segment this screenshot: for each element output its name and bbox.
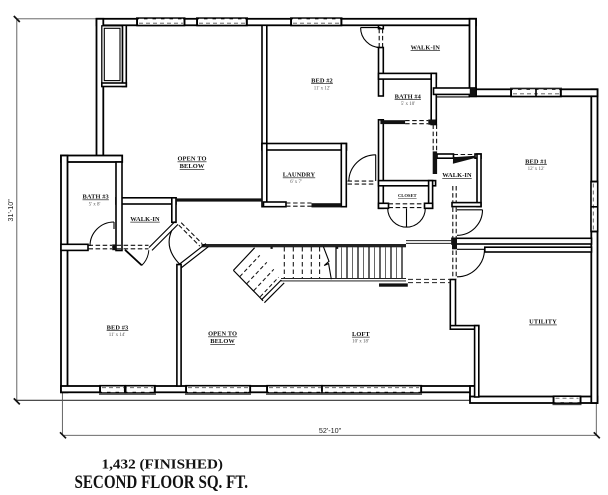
svg-text:10' x 18': 10' x 18' (352, 339, 369, 344)
svg-text:31'-10": 31'-10" (6, 199, 15, 222)
svg-text:BELOW: BELOW (210, 338, 235, 345)
svg-text:1,432 (FINISHED): 1,432 (FINISHED) (102, 458, 224, 473)
svg-text:5' x 10': 5' x 10' (401, 102, 415, 107)
svg-text:5' x 8': 5' x 8' (89, 202, 101, 207)
svg-text:WALK-IN: WALK-IN (411, 44, 441, 51)
svg-text:BATH #3: BATH #3 (83, 194, 109, 201)
svg-text:LAUNDRY: LAUNDRY (283, 172, 316, 179)
svg-text:6' x 7': 6' x 7' (290, 180, 302, 185)
svg-text:11' x 12': 11' x 12' (314, 87, 331, 92)
svg-text:BED #3: BED #3 (107, 324, 129, 331)
svg-text:BELOW: BELOW (180, 163, 205, 170)
svg-text:LOFT: LOFT (352, 331, 370, 338)
svg-text:12' x 12': 12' x 12' (528, 167, 545, 172)
svg-text:WALK-IN: WALK-IN (442, 172, 472, 179)
svg-text:OPEN TO: OPEN TO (208, 331, 237, 338)
svg-text:52'-10": 52'-10" (319, 426, 342, 435)
svg-text:BED #1: BED #1 (525, 158, 547, 165)
svg-text:UTILITY: UTILITY (529, 319, 557, 326)
svg-text:11' x 14': 11' x 14' (109, 333, 126, 338)
svg-text:BATH #4: BATH #4 (395, 93, 422, 100)
svg-text:CLOSET: CLOSET (398, 193, 417, 198)
svg-text:WALK-IN: WALK-IN (130, 216, 160, 223)
svg-text:BED #2: BED #2 (311, 77, 333, 84)
svg-text:OPEN TO: OPEN TO (177, 156, 206, 163)
svg-text:SECOND FLOOR SQ. FT.: SECOND FLOOR SQ. FT. (75, 473, 249, 493)
